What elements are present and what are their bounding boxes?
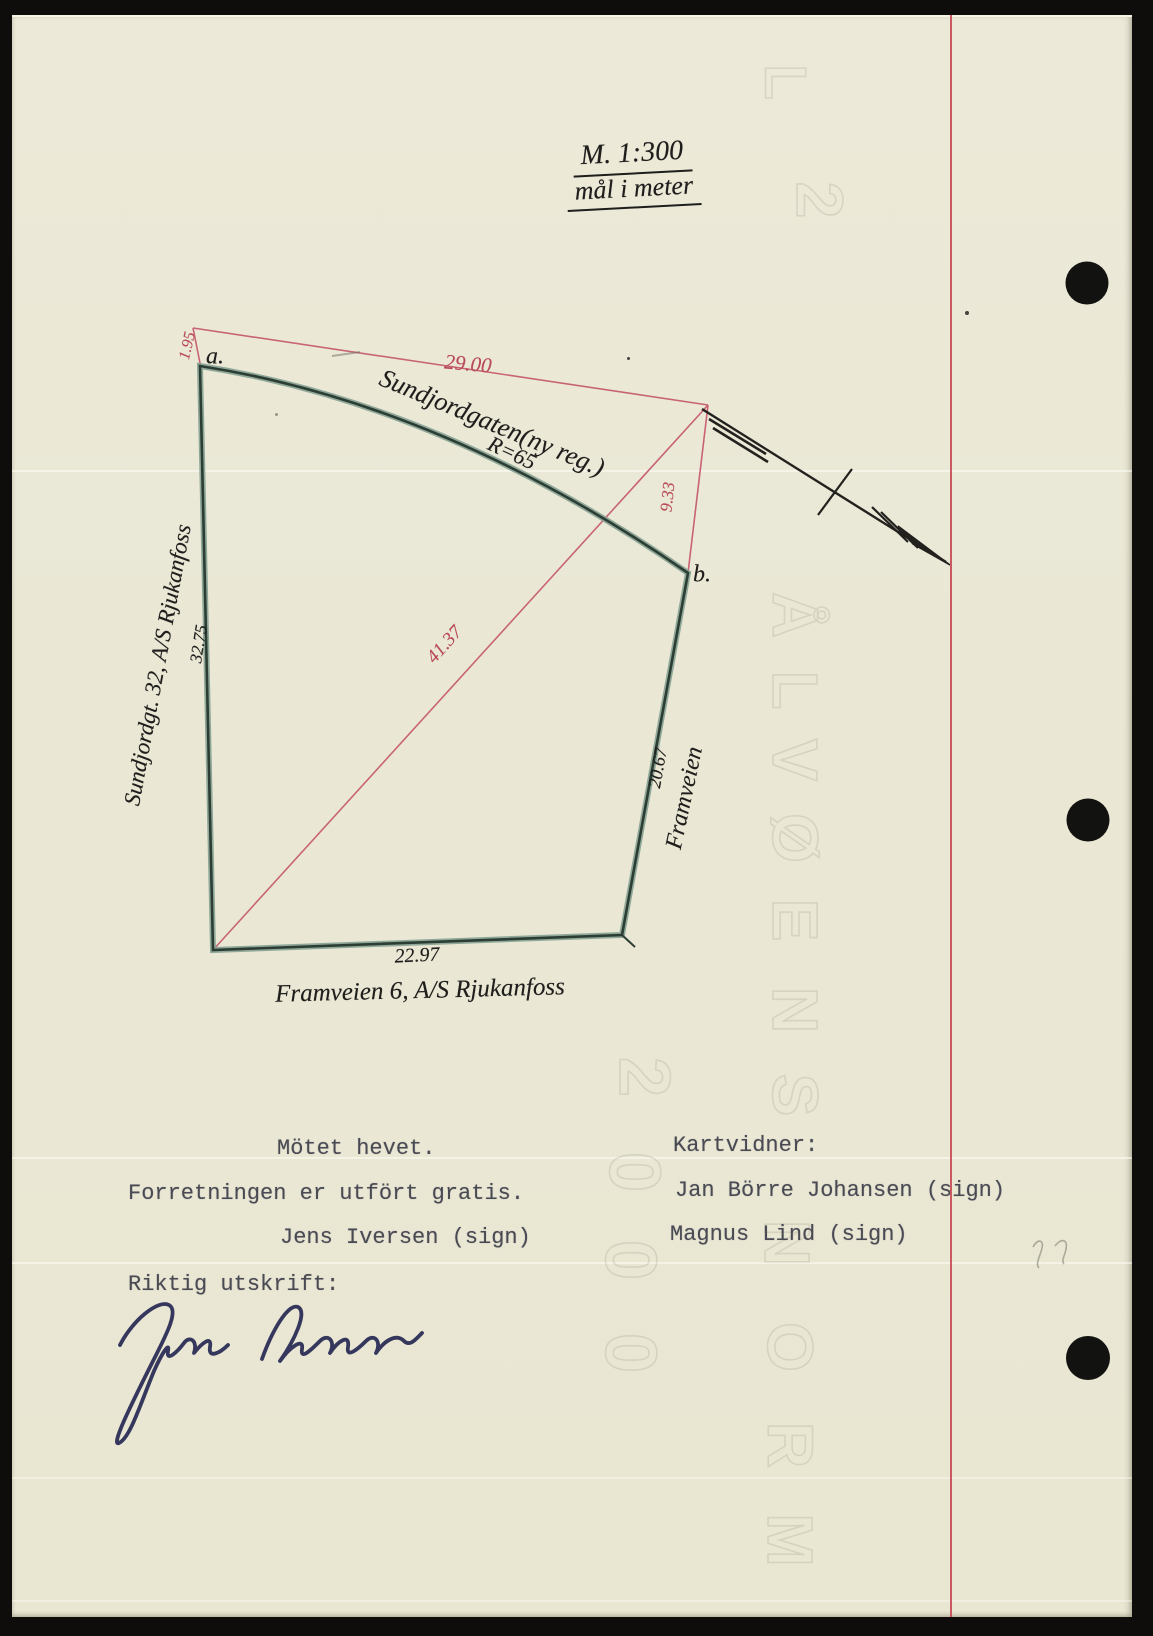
pencil-scribble-45 [1033,1241,1066,1268]
punch-hole [1067,799,1110,842]
corner-tick [622,935,635,947]
punch-hole [1066,262,1109,305]
minutes-surveyor-line: Jens Iversen (sign) [280,1225,531,1250]
signature-ink [117,1304,422,1443]
point-b-label: b. [693,562,711,589]
survey-arrow [702,409,950,565]
minutes-certify-line: Riktig utskrift: [128,1272,339,1297]
map-scale-subtitle: mål i meter [566,170,702,212]
minutes-gratis-line: Forretningen er utfört gratis. [128,1181,524,1206]
pencil-marks [332,352,1066,1268]
scanned-survey-page: L 2 Å L V Ø E N S 2 0 0 0 N O R M [12,15,1132,1617]
dust-speck [965,311,969,315]
minutes-meeting-closed: Mötet hevet. [277,1136,435,1161]
arrow-head [898,526,950,565]
signature-word-jens [117,1304,228,1443]
measure-top-label: 29.00 [443,349,492,378]
minutes-witnesses-heading: Kartvidner: [673,1133,818,1158]
punch-hole [1066,1336,1110,1380]
dust-speck [275,413,278,416]
dust-speck [627,357,630,360]
minutes-witness-1: Jan Börre Johansen (sign) [675,1178,1005,1203]
survey-drawing [12,15,1132,1617]
measure-line-933 [688,405,708,573]
pencil-dash [332,352,360,356]
red-margin-line [950,15,952,1617]
measure-offset-b-label: 9.33 [656,481,679,513]
measure-bottom-label: 22.97 [394,943,440,968]
scanned-document-background: { "colors": { "paper": "#eae8d5", "margi… [0,0,1153,1636]
signature-word-iversen [262,1307,422,1361]
arrow-feather [709,419,768,462]
arrow-cross-tick [818,469,852,515]
minutes-witness-2: Magnus Lind (sign) [670,1222,908,1247]
point-a-label: a. [206,344,224,371]
